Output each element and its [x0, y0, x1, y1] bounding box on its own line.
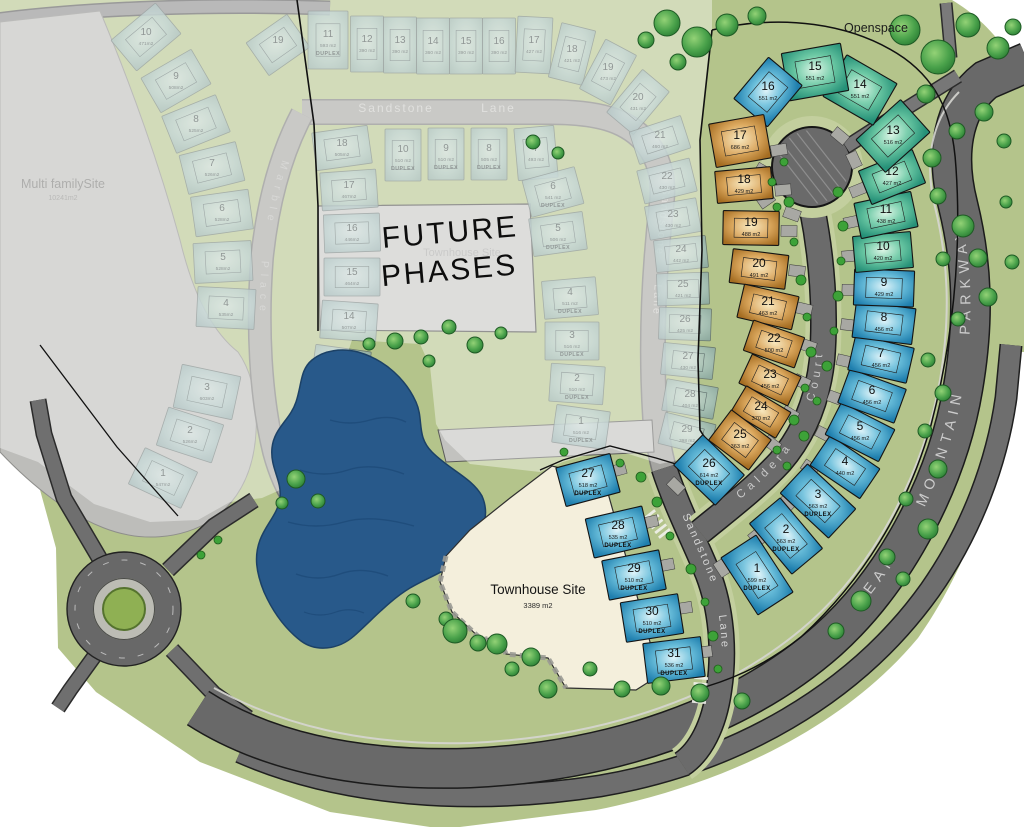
- lot-area: 456 m2: [875, 327, 894, 333]
- tree: [921, 353, 935, 367]
- lot: 9429 m2: [853, 269, 914, 307]
- lot-number: 13: [886, 123, 900, 137]
- lot-number: 20: [752, 256, 766, 270]
- tree: [467, 337, 483, 353]
- tree: [487, 634, 507, 654]
- lot-area: 563 m2: [809, 504, 828, 510]
- lot-number: 6: [869, 383, 876, 397]
- driveway-pad: [781, 225, 797, 236]
- tree: [387, 333, 403, 349]
- lot: 31536 m2DUPLEX: [643, 637, 705, 684]
- lot-area: 456 m2: [863, 400, 882, 406]
- tree: [638, 32, 654, 48]
- bush: [833, 187, 843, 197]
- bush: [666, 532, 674, 540]
- lot-area: 535 m2: [609, 535, 628, 541]
- tree: [923, 149, 941, 167]
- tree: [734, 693, 750, 709]
- bush: [799, 431, 809, 441]
- tree: [522, 648, 540, 666]
- lot-duplex-label: DUPLEX: [695, 481, 722, 487]
- tree: [828, 623, 844, 639]
- lot: 18429 m2: [715, 167, 774, 204]
- tree: [552, 147, 564, 159]
- tree: [851, 591, 871, 611]
- bush: [560, 448, 568, 456]
- lot: 30510 m2DUPLEX: [620, 594, 684, 643]
- tree: [997, 134, 1011, 148]
- bush: [838, 221, 848, 231]
- lot-duplex-label: DUPLEX: [772, 547, 799, 553]
- tree: [1005, 19, 1021, 35]
- lot-area: 456 m2: [851, 436, 870, 442]
- lot-duplex-label: DUPLEX: [638, 629, 665, 635]
- lot-number: 18: [737, 172, 751, 186]
- townhouse-site-area: 3389 m2: [523, 601, 552, 610]
- tree: [614, 681, 630, 697]
- bush: [837, 257, 845, 265]
- bush: [616, 459, 624, 467]
- lot-area: 686 m2: [731, 145, 750, 151]
- bush: [803, 313, 811, 321]
- lot-duplex-label: DUPLEX: [743, 586, 770, 592]
- lot-duplex-label: DUPLEX: [804, 512, 831, 518]
- tree: [495, 327, 507, 339]
- lot-area: 510 m2: [625, 578, 644, 584]
- lot-number: 9: [881, 275, 888, 289]
- tree: [442, 320, 456, 334]
- tree: [930, 188, 946, 204]
- bush: [790, 238, 798, 246]
- lot-area: 551 m2: [851, 94, 870, 100]
- tree: [918, 519, 938, 539]
- tree: [935, 385, 951, 401]
- tree: [918, 424, 932, 438]
- lot-area: 551 m2: [806, 76, 825, 82]
- tree: [443, 619, 467, 643]
- tree: [716, 14, 738, 36]
- tree: [276, 497, 288, 509]
- bush: [830, 327, 838, 335]
- tree: [583, 662, 597, 676]
- lot-number: 29: [627, 561, 641, 575]
- lot-area: 518 m2: [579, 483, 598, 489]
- tree: [969, 249, 987, 267]
- lot-area: 456 m2: [872, 363, 891, 369]
- lot: 19488 m2: [723, 211, 780, 246]
- bush: [214, 536, 222, 544]
- lot-area: 488 m2: [742, 232, 761, 238]
- lot-duplex-label: DUPLEX: [604, 543, 631, 549]
- tree: [670, 54, 686, 70]
- tree: [691, 684, 709, 702]
- tree: [936, 252, 950, 266]
- tree: [423, 355, 435, 367]
- lot-area: 427 m2: [883, 181, 902, 187]
- lot-number: 11: [880, 202, 893, 216]
- lot-number: 30: [645, 604, 659, 618]
- lot-area: 440 m2: [836, 471, 855, 477]
- lot-number: 5: [857, 419, 864, 433]
- tree: [896, 572, 910, 586]
- lot-number: 4: [842, 454, 849, 468]
- lot-area: 500 m2: [765, 348, 784, 354]
- lot-area: 563 m2: [777, 539, 796, 545]
- bush: [714, 665, 722, 673]
- lot-number: 17: [733, 128, 747, 142]
- lot-area: 438 m2: [877, 219, 896, 225]
- lot-number: 14: [853, 77, 867, 91]
- lot-area: 536 m2: [665, 663, 684, 669]
- bush: [768, 178, 776, 186]
- lot-area: 429 m2: [735, 189, 754, 195]
- tree: [952, 215, 974, 237]
- lot-number: 16: [761, 79, 775, 93]
- tree: [363, 338, 375, 350]
- tree: [1005, 255, 1019, 269]
- tree: [949, 123, 965, 139]
- tree: [414, 330, 428, 344]
- bush: [701, 598, 709, 606]
- tree: [526, 135, 540, 149]
- tree: [899, 492, 913, 506]
- lot: 20491 m2: [729, 249, 789, 290]
- tree: [879, 549, 895, 565]
- bush: [197, 551, 205, 559]
- tree: [470, 635, 486, 651]
- townhouse-site-label: Townhouse Site: [490, 582, 585, 597]
- lot-number: 15: [808, 59, 822, 73]
- tree: [951, 312, 965, 326]
- lot-number: 19: [744, 215, 758, 229]
- site-plan-stage: Townhouse Site Sandstone Lane Sandstone …: [0, 0, 1024, 827]
- lot-duplex-label: DUPLEX: [660, 671, 687, 677]
- lot-area: 370 m2: [752, 416, 771, 422]
- bush: [789, 415, 799, 425]
- lot-area: 429 m2: [875, 292, 894, 298]
- bush: [822, 361, 832, 371]
- tree: [682, 27, 712, 57]
- lot-number: 3: [815, 487, 822, 501]
- tree: [975, 103, 993, 121]
- lot-area: 599 m2: [748, 578, 767, 584]
- lot-area: 363 m2: [731, 444, 750, 450]
- lot-number: 25: [733, 427, 747, 441]
- lot-number: 21: [761, 294, 775, 308]
- tree: [956, 13, 980, 37]
- bush: [806, 347, 816, 357]
- lot-number: 22: [767, 331, 781, 345]
- tree: [1000, 196, 1012, 208]
- tree: [748, 7, 766, 25]
- site-plan-svg: Townhouse Site Sandstone Lane Sandstone …: [0, 0, 1024, 827]
- bush: [784, 197, 794, 207]
- lot-duplex-label: DUPLEX: [620, 586, 647, 592]
- tree: [539, 680, 557, 698]
- tree: [929, 460, 947, 478]
- lot-area: 420 m2: [874, 256, 893, 262]
- lot-area: 516 m2: [884, 140, 903, 146]
- lot-area: 551 m2: [759, 96, 778, 102]
- tree: [406, 594, 420, 608]
- lot-number: 24: [754, 399, 768, 413]
- lot-area: 491 m2: [750, 273, 769, 279]
- lot-number: 28: [611, 518, 625, 532]
- lot-number: 23: [763, 367, 777, 381]
- lot-area: 614 m2: [700, 473, 719, 479]
- bush: [636, 472, 646, 482]
- bush: [686, 564, 696, 574]
- lot: 17686 m2: [709, 114, 772, 167]
- tree: [505, 662, 519, 676]
- lot-duplex-label: DUPLEX: [574, 491, 601, 497]
- tree: [652, 677, 670, 695]
- lot-number: 7: [878, 346, 885, 360]
- tree: [917, 85, 935, 103]
- bush: [813, 397, 821, 405]
- roundabout-island: [103, 588, 145, 630]
- lot-number: 26: [702, 456, 716, 470]
- bush: [833, 291, 843, 301]
- bush: [796, 275, 806, 285]
- lot-number: 31: [667, 646, 681, 660]
- lot-area: 463 m2: [759, 311, 778, 317]
- lot-area: 510 m2: [643, 621, 662, 627]
- lot-area: 456 m2: [761, 384, 780, 390]
- driveway-pad: [775, 184, 792, 196]
- tree: [987, 37, 1009, 59]
- openspace-label: Openspace: [844, 21, 908, 35]
- bush: [783, 462, 791, 470]
- lot-number: 1: [754, 561, 761, 575]
- lot-number: 2: [783, 522, 790, 536]
- bush: [773, 446, 781, 454]
- tree: [979, 288, 997, 306]
- bush: [708, 631, 718, 641]
- tree: [311, 494, 325, 508]
- lot-number: 10: [876, 239, 890, 253]
- lot: 8456 m2: [852, 301, 916, 344]
- tree: [654, 10, 680, 36]
- bush: [801, 384, 809, 392]
- tree: [287, 470, 305, 488]
- tree: [921, 40, 955, 74]
- lot-number: 8: [881, 310, 888, 324]
- bush: [773, 203, 781, 211]
- bush: [652, 497, 662, 507]
- lot-number: 27: [581, 466, 595, 480]
- bush: [780, 158, 788, 166]
